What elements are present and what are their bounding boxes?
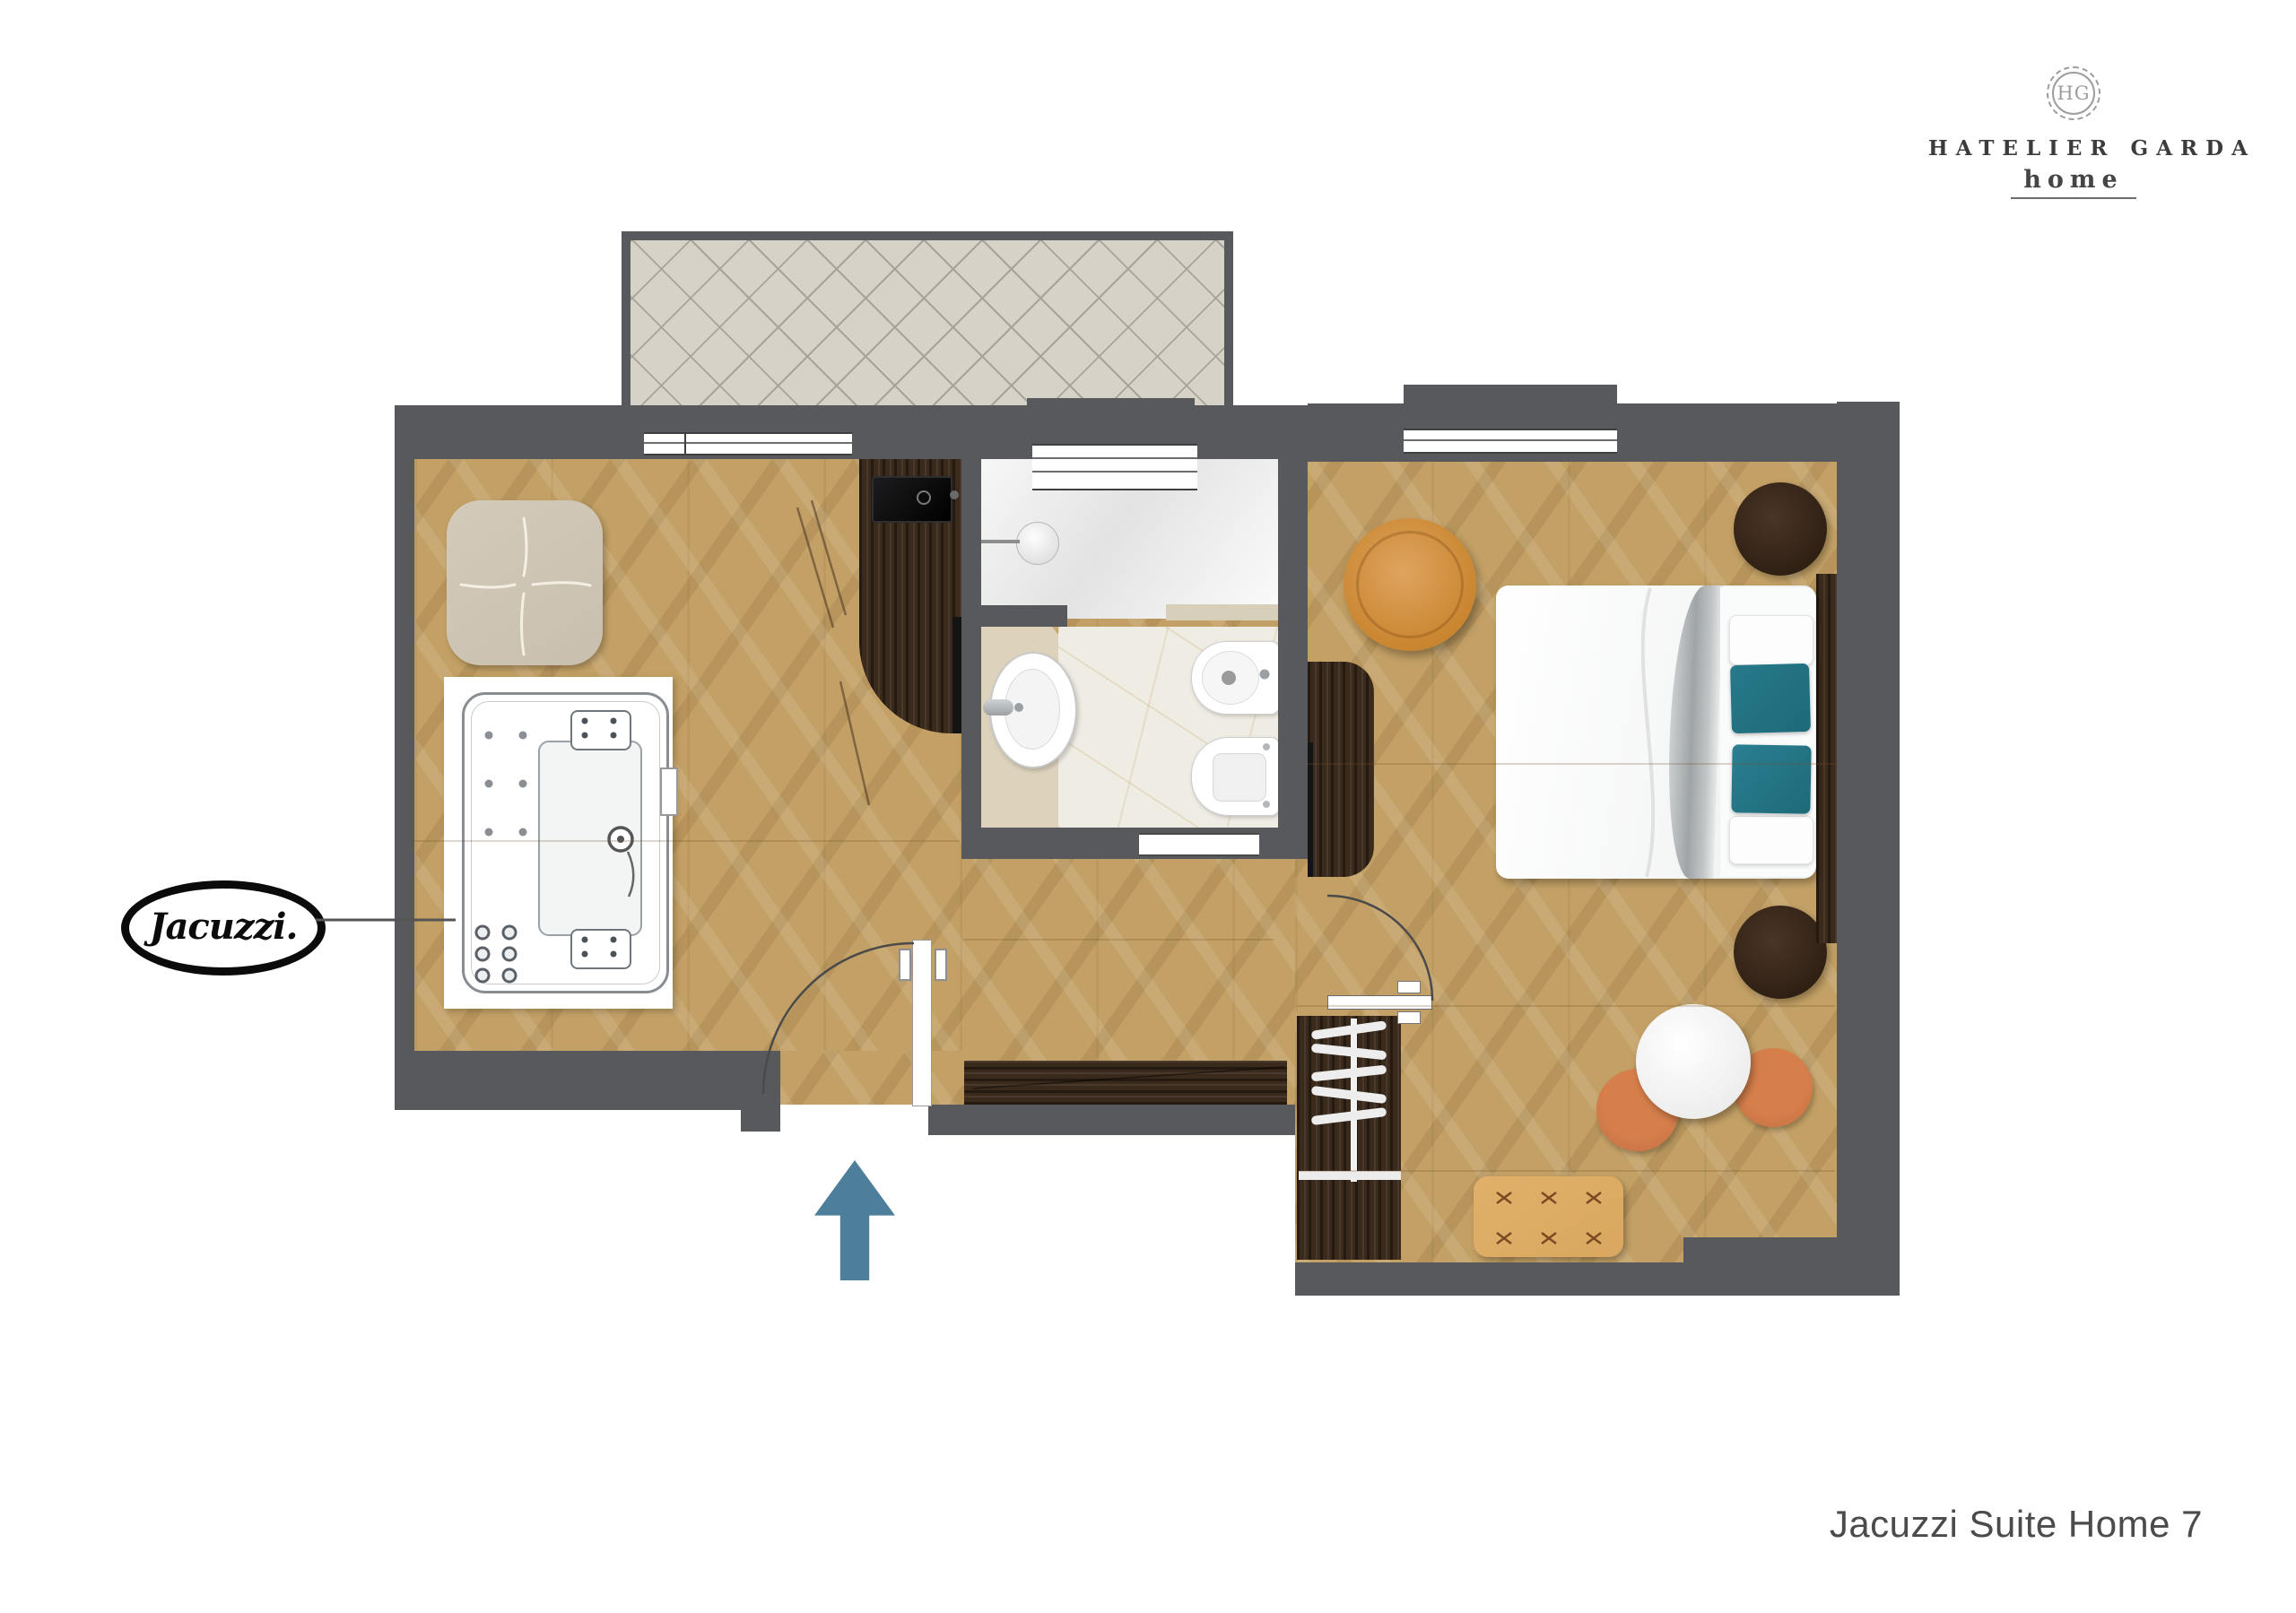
brand-subtitle: home: [2011, 166, 2135, 199]
page-title: Jacuzzi Suite Home 7: [1830, 1503, 2203, 1546]
jacuzzi-brand-badge: Jacuzzi.: [121, 880, 326, 976]
door-stop-icon: [935, 949, 947, 981]
toilet-seat: [1213, 753, 1266, 802]
window-shower: [1032, 444, 1197, 490]
dining-table: [1636, 1004, 1751, 1119]
floor-plan-page: HG HATELIER GARDA home Jacuzzi. Jacuzzi …: [0, 0, 2296, 1613]
sink-faucet-icon: [983, 699, 1013, 715]
corridor-sideboard: [964, 1061, 1287, 1105]
bedroom-desk: [1308, 662, 1374, 877]
terrace-tiles: [631, 240, 1224, 414]
entrance-arrow-icon: [814, 1160, 895, 1280]
entry-bench: [1474, 1176, 1623, 1257]
bedroom-door-leaf: [1327, 995, 1432, 1010]
door-stop-icon: [899, 949, 911, 981]
wall-step: [741, 1051, 780, 1132]
tv-screen: [872, 476, 952, 523]
shower-ledge: [1166, 604, 1278, 620]
door-stop-icon: [1397, 1011, 1421, 1024]
shower-head-icon: [1016, 522, 1059, 565]
terrace: [622, 231, 1233, 414]
bedroom-pouf: [1344, 518, 1476, 651]
bathroom-door-threshold: [1139, 833, 1259, 856]
wall-bathroom-left: [961, 459, 981, 859]
floor-entrance-recess: [778, 1051, 964, 1105]
jacuzzi-headrest-top: [570, 710, 631, 750]
jacuzzi-seat-panel: [538, 741, 642, 936]
bed-pillow-teal-bottom: [1731, 744, 1811, 814]
brand-logo: HG HATELIER GARDA home: [1928, 66, 2219, 199]
closet-shelf: [1299, 1171, 1401, 1180]
jacuzzi-side-fixture: [660, 767, 678, 816]
bed-pillow-teal-top: [1730, 663, 1811, 733]
wall-right: [1837, 402, 1900, 1296]
wall-entry-bottom: [1295, 1262, 1683, 1296]
brand-monogram-icon: HG: [2047, 66, 2100, 120]
bedroom-pouf-ring: [1356, 531, 1464, 638]
bedroom-desk-edge: [1308, 742, 1313, 877]
wall-corridor-bottom: [928, 1105, 1295, 1135]
wall-left: [395, 405, 414, 1110]
nightstand-top: [1734, 482, 1827, 576]
entrance-door-leaf: [912, 940, 932, 1106]
bed-pillow-white-bottom: [1729, 816, 1813, 864]
wall-bump-bath: [1027, 398, 1195, 450]
bed-headboard: [1816, 574, 1839, 943]
wall-bump-bedroom: [1404, 385, 1617, 405]
wall-shower-divider: [981, 605, 1067, 627]
jacuzzi-brand-text: Jacuzzi.: [150, 906, 298, 948]
bidet-drain-icon: [1222, 671, 1236, 685]
brand-name: HATELIER GARDA: [1928, 136, 2219, 160]
brand-monogram: HG: [2057, 82, 2090, 104]
nightstand-bottom: [1734, 906, 1827, 999]
window-bedroom: [1404, 429, 1617, 454]
wall-living-bottom: [395, 1051, 761, 1110]
living-pouf: [447, 500, 603, 665]
door-stop-icon: [1397, 981, 1421, 993]
cabinet-edge: [952, 617, 961, 733]
jacuzzi-headrest-bottom: [570, 929, 631, 969]
window-living: [644, 432, 852, 455]
window-mullion: [684, 434, 686, 454]
wall-bathroom-right: [1278, 459, 1308, 859]
bed-pillow-white-top: [1729, 615, 1813, 665]
wall-entry-bottom-step: [1683, 1237, 1837, 1296]
